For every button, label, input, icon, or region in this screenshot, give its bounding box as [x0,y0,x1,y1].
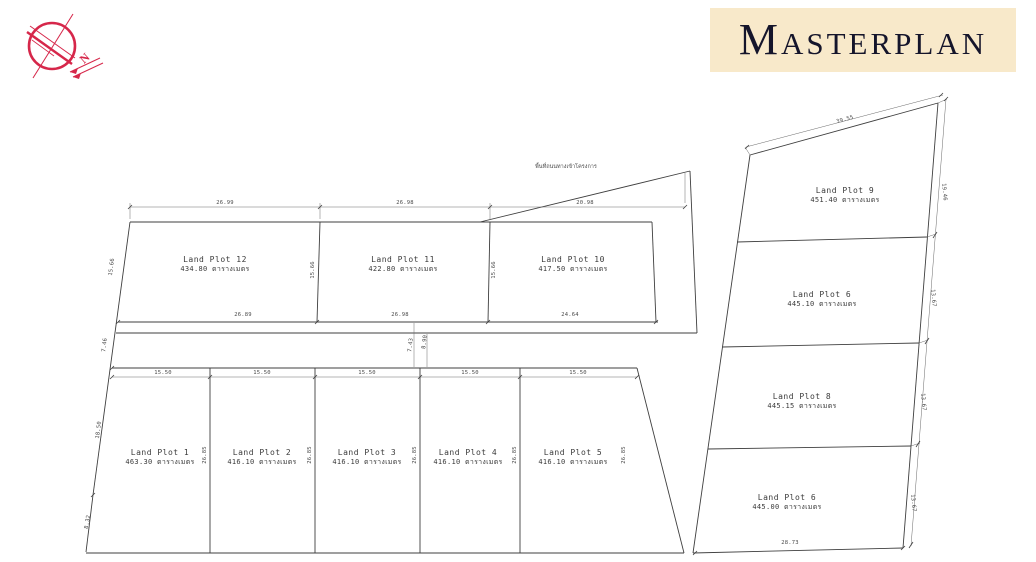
plot-area: 445.15 ตารางเมตร [767,401,836,412]
dim-rc-bottom: 28.73 [781,540,799,546]
plot-label-6-lower: Land Plot 6 445.00 ตารางเมตร [752,493,821,513]
plot-name: Land Plot 11 [368,255,437,264]
plot-label-5: Land Plot 5 416.10 ตารางเมตร [538,448,607,468]
dim-height-1: 26.85 [202,446,208,464]
plot-name: Land Plot 8 [767,392,836,401]
dim-width-4: 15.50 [461,370,479,376]
plot-area: 445.00 ตารางเมตร [752,502,821,513]
plot-area: 463.30 ตารางเมตร [125,457,194,468]
plot-name: Land Plot 6 [787,290,856,299]
dim-top-1: 26.99 [216,200,234,206]
plot-name: Land Plot 9 [810,186,879,195]
dim-height-11-10: 15.66 [491,261,497,279]
dim-bottom-3: 24.64 [561,312,579,318]
dim-top-2: 26.98 [396,200,414,206]
plot-area: 416.10 ตารางเมตร [538,457,607,468]
plot-name: Land Plot 4 [433,448,502,457]
plot-label-6-upper: Land Plot 6 445.10 ตารางเมตร [787,290,856,310]
plot-label-9: Land Plot 9 451.40 ตารางเมตร [810,186,879,206]
plot-label-1: Land Plot 1 463.30 ตารางเมตร [125,448,194,468]
plot-label-3: Land Plot 3 416.10 ตารางเมตร [332,448,401,468]
plot-label-8: Land Plot 8 445.15 ตารางเมตร [767,392,836,412]
dim-width-5: 15.50 [569,370,587,376]
plot-label-4: Land Plot 4 416.10 ตารางเมตร [433,448,502,468]
site-plan-lines [0,0,1036,562]
dim-bottom-2: 26.98 [391,312,409,318]
plot-area: 422.80 ตารางเมตร [368,264,437,275]
plot-name: Land Plot 6 [752,493,821,502]
dim-top-3: 20.98 [576,200,594,206]
plot-area: 416.10 ตารางเมตร [227,457,296,468]
plot-area: 434.80 ตารางเมตร [180,264,249,275]
plot-name: Land Plot 10 [538,255,607,264]
plot-name: Land Plot 12 [180,255,249,264]
plot-area: 416.10 ตารางเมตร [332,457,401,468]
plot-name: Land Plot 2 [227,448,296,457]
dim-height-3: 26.85 [412,446,418,464]
plot-name: Land Plot 3 [332,448,401,457]
dim-height-5: 26.85 [621,446,627,464]
plot-name: Land Plot 1 [125,448,194,457]
masterplan-page: N Masterplan [0,0,1036,562]
plot-name: Land Plot 5 [538,448,607,457]
plot-label-11: Land Plot 11 422.80 ตารางเมตร [368,255,437,275]
plot-area: 451.40 ตารางเมตร [810,195,879,206]
plot-area: 417.50 ตารางเมตร [538,264,607,275]
dim-width-3: 15.50 [358,370,376,376]
dim-height-4: 26.85 [512,446,518,464]
plot-area: 416.10 ตารางเมตร [433,457,502,468]
plot-area: 445.10 ตารางเมตร [787,299,856,310]
plot-label-10: Land Plot 10 417.50 ตารางเมตร [538,255,607,275]
road-note: พื้นที่ถนนทางเข้าโครงการ [535,163,597,171]
dim-bottom-1: 26.89 [234,312,252,318]
dim-height-2: 26.85 [307,446,313,464]
dim-height-12-11: 15.66 [310,261,316,279]
plot-label-12: Land Plot 12 434.80 ตารางเมตร [180,255,249,275]
plot-label-2: Land Plot 2 416.10 ตารางเมตร [227,448,296,468]
dim-width-1: 15.50 [154,370,172,376]
dim-width-2: 15.50 [253,370,271,376]
